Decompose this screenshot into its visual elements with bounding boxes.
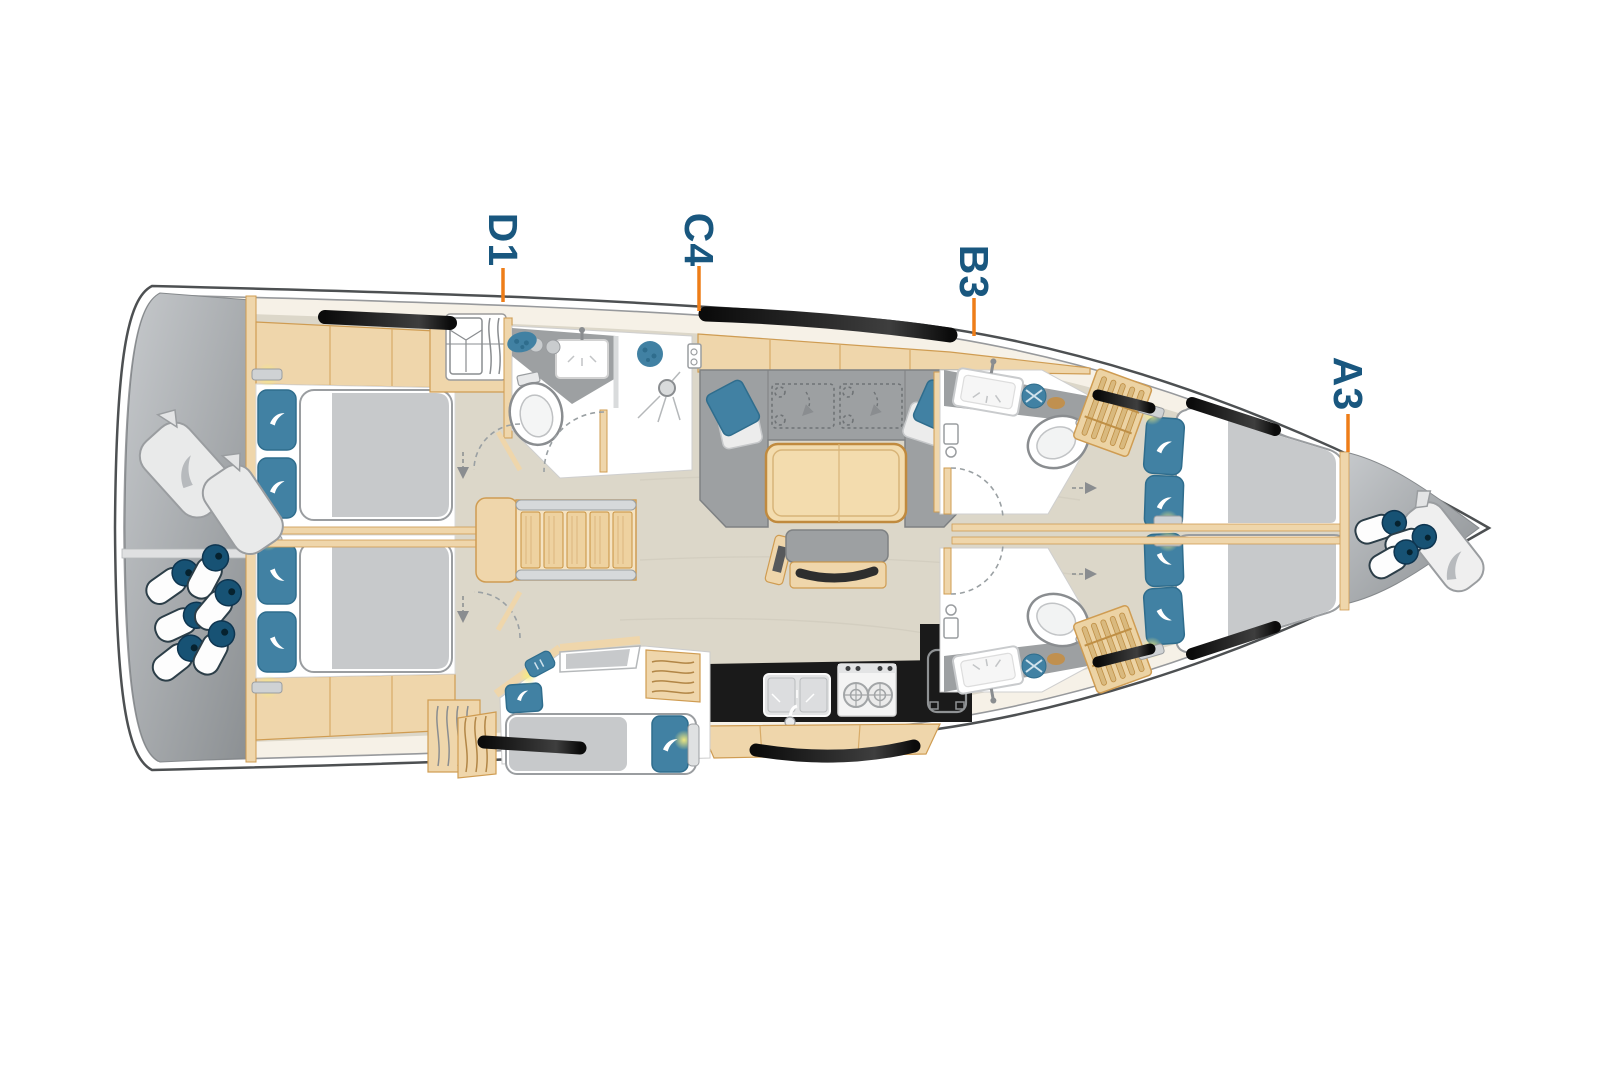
saloon-bench [764,530,888,588]
companionway-stairs [476,498,636,582]
saloon-table [766,444,906,522]
stern-deck-seam [122,549,250,558]
galley-stove [838,664,896,716]
towel-icon [637,341,663,367]
head-door [600,410,607,472]
vent-locker [646,650,700,702]
blue-pillow [505,683,543,713]
aft-cabin-port [252,322,455,533]
yacht-deck-plan: D1 C4 B3 A3 [0,0,1620,1080]
yacht-layout-image: D1 C4 B3 A3 [0,0,1620,1080]
label-A3: A3 [1325,357,1371,411]
label-D1: D1 [480,213,526,267]
label-C4: C4 [676,213,722,267]
label-B3: B3 [951,245,997,299]
aft-cabin-starboard [252,529,455,740]
